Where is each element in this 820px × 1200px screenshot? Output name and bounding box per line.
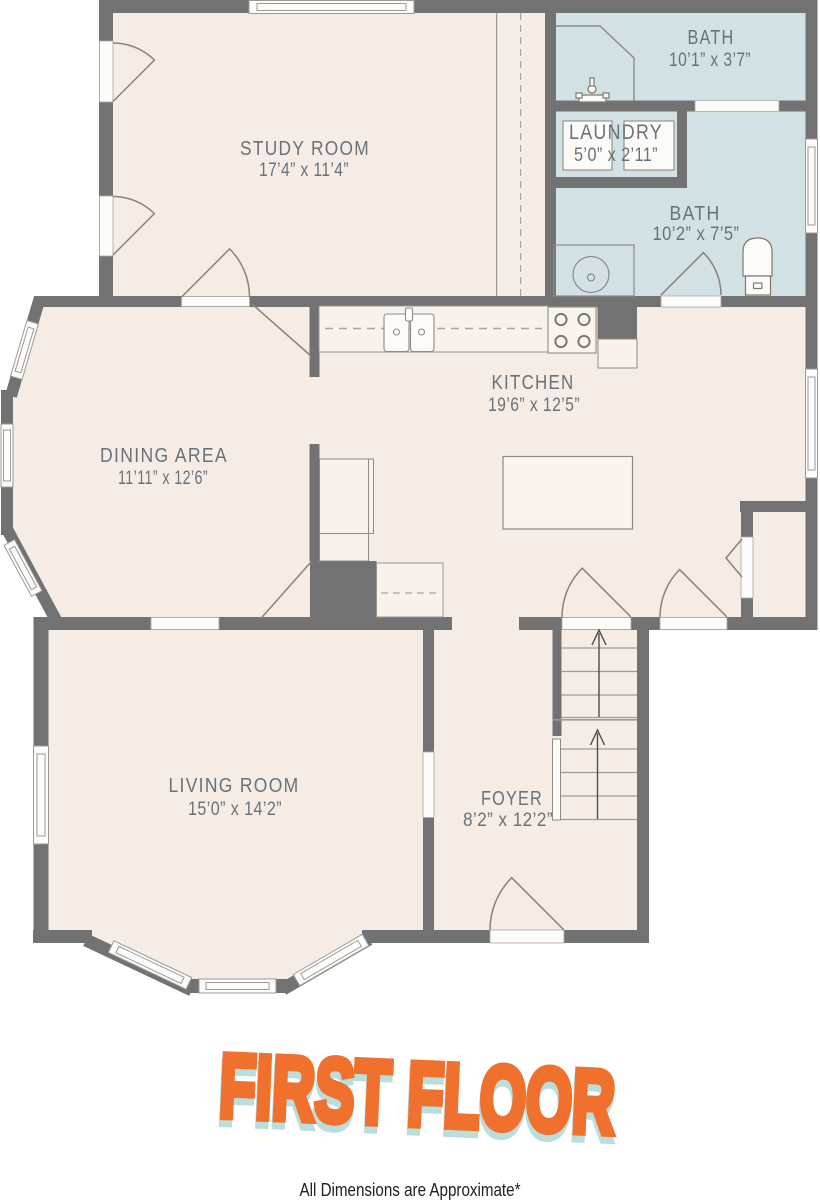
svg-text:FOYER: FOYER [481, 788, 543, 810]
svg-text:KITCHEN: KITCHEN [492, 372, 575, 394]
svg-text:LAUNDRY: LAUNDRY [569, 121, 663, 144]
svg-text:STUDY ROOM: STUDY ROOM [240, 138, 370, 160]
svg-text:DINING AREA: DINING AREA [100, 445, 228, 467]
svg-text:19’6” x 12’5”: 19’6” x 12’5” [488, 395, 580, 416]
svg-text:11’11” x 12’6”: 11’11” x 12’6” [118, 468, 208, 489]
svg-text:BATH: BATH [688, 27, 735, 49]
svg-text:All Dimensions are Approximate: All Dimensions are Approximate* [300, 1179, 521, 1200]
svg-text:BATH: BATH [670, 203, 721, 225]
svg-text:10’1” x 3’7”: 10’1” x 3’7” [669, 50, 751, 71]
svg-text:5’0” x 2’11”: 5’0” x 2’11” [574, 145, 658, 166]
svg-text:LIVING ROOM: LIVING ROOM [169, 775, 300, 797]
svg-text:10’2” x 7’5”: 10’2” x 7’5” [653, 224, 740, 245]
svg-text:8’2” x 12’2”: 8’2” x 12’2” [463, 810, 553, 831]
svg-text:17’4” x 11’4”: 17’4” x 11’4” [259, 160, 349, 181]
svg-text:15’0” x 14’2”: 15’0” x 14’2” [188, 799, 282, 820]
svg-text:FIRST FLOOR: FIRST FLOOR [217, 1036, 617, 1154]
